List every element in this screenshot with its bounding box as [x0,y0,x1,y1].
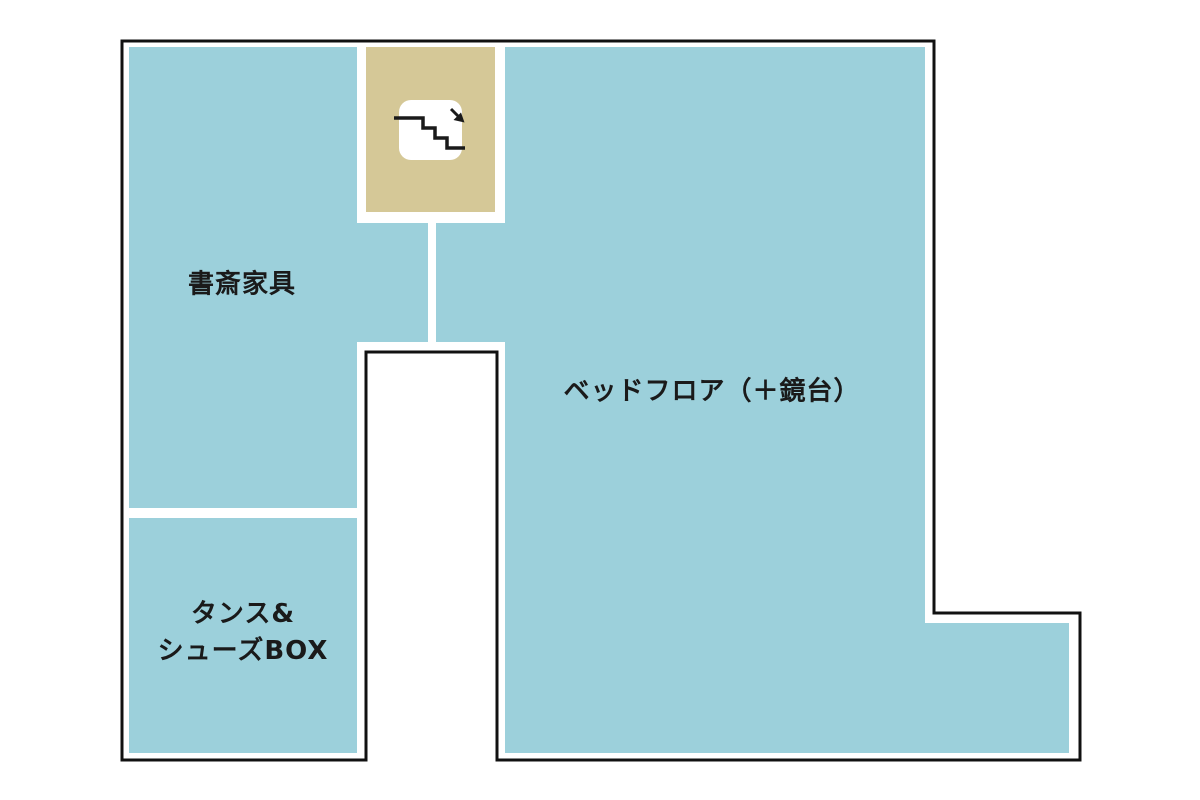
room-label-tansu-line2: シューズBOX [158,633,329,670]
room-study-extension [357,223,428,342]
stairs-down-icon [385,95,475,165]
room-label-bed-floor: ベッドフロア（＋鏡台） [563,371,860,408]
room-label-tansu-shoes-box: タンス& シューズBOX [158,596,329,670]
room-label-study: 書斎家具 [188,264,296,301]
floor-plan-canvas: 書斎家具 ベッドフロア（＋鏡台） タンス& シューズBOX [0,0,1200,800]
room-label-tansu-line1: タンス& [158,596,329,633]
room-bed-floor-extension-bottom-right [924,623,1069,753]
room-bed-floor-extension-left [436,223,506,342]
